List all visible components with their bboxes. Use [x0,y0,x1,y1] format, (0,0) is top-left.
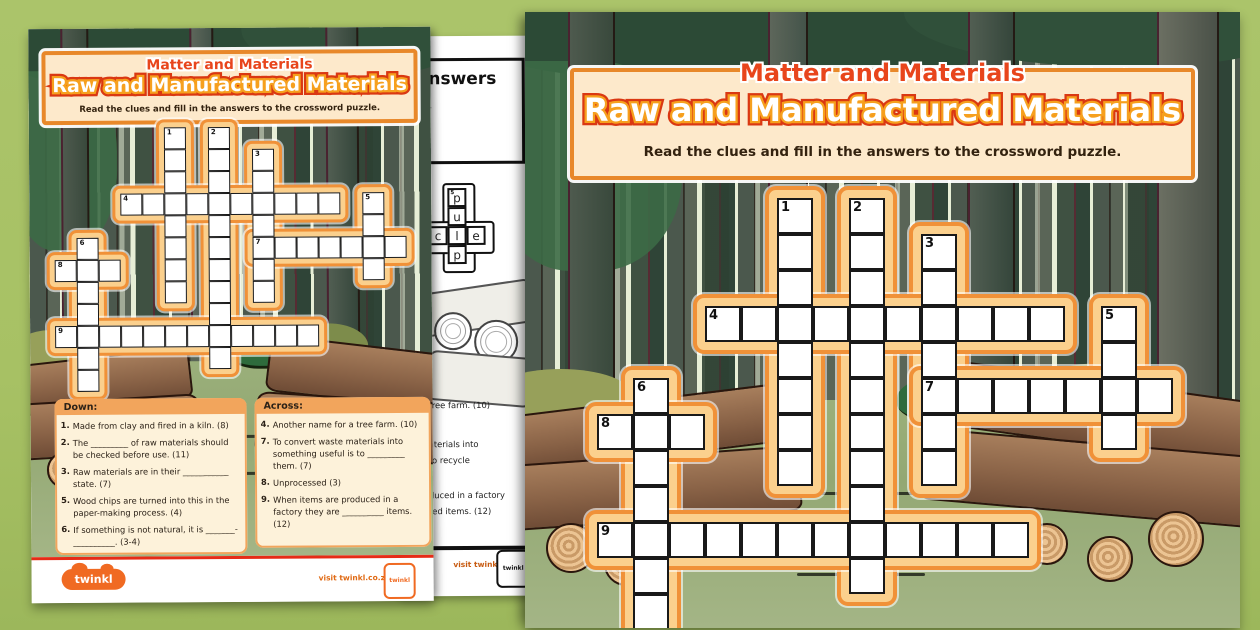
crossword-clue-number: 9 [58,328,63,335]
across-clues-title: Across: [255,397,431,414]
crossword-cell[interactable] [165,325,187,347]
answers-cell: p5 [447,188,466,207]
crossword-cell[interactable] [1101,342,1137,378]
crossword-cell[interactable] [1029,306,1065,342]
visit-twinkl-link[interactable]: visit twinkl.co.za [319,573,390,582]
crossword-clue-number: 6 [637,381,646,394]
clue-item: 9.When items are produced in a factory t… [261,493,424,530]
clue-text: The _________ of raw materials should be… [73,436,240,461]
crossword-cell[interactable] [813,522,849,558]
clue-text: Made from clay and fired in a kiln. (8) [73,419,240,432]
crossword-cell[interactable] [165,259,187,281]
crossword-cell[interactable] [921,450,957,486]
crossword-cell[interactable] [1029,378,1065,414]
clue-item: 1.Made from clay and fired in a kiln. (8… [61,419,240,432]
crossword-cell[interactable] [164,193,186,215]
crossword-cell[interactable] [142,193,164,215]
crossword-cell[interactable] [164,149,186,171]
answers-clue-fragment: tree farm. (10) [428,400,536,411]
crossword-cell[interactable] [143,325,165,347]
crossword-cell[interactable] [363,258,385,280]
crossword-clue-number: 1 [781,201,790,214]
crossword-clue-number: 7 [256,239,261,246]
crossword-cell[interactable] [669,414,705,450]
clue-number: 6. [61,524,73,548]
crossword-cell[interactable] [296,192,318,214]
answers-clue-fragment: duced in a factory [429,489,537,500]
clue-text: To convert waste materials into somethin… [273,435,424,472]
crossword-cell[interactable] [777,306,813,342]
crossword-clue-number: 3 [255,151,260,158]
answer-letter: u [449,209,464,224]
crossword-cell[interactable] [252,215,274,237]
crossword-cell[interactable] [921,414,957,450]
crossword-cell[interactable] [921,522,957,558]
clue-item: 3.Raw materials are in their ___________… [61,465,240,490]
crossword-cell[interactable] [319,236,341,258]
crossword-cell[interactable] [209,281,231,303]
crossword-cell[interactable] [99,260,121,282]
answers-clue-fragment: red items. (12) [429,505,537,516]
crossword-cell[interactable] [253,259,275,281]
crossword-cell[interactable] [253,281,275,303]
crossword-cell[interactable] [77,304,99,326]
crossword-cell[interactable] [209,259,231,281]
log-sketch-illustration [434,312,472,350]
crossword-cell[interactable] [297,324,319,346]
crossword-cell[interactable] [957,522,993,558]
clue-number: 2. [61,437,73,461]
crossword-cell[interactable]: 4 [120,194,142,216]
down-clues-box: Down: 1.Made from clay and fired in a ki… [55,398,248,555]
crossword-cell[interactable] [777,450,813,486]
crossword-cell[interactable]: 2 [208,127,230,149]
clue-item: 2.The _________ of raw materials should … [61,436,240,461]
crossword-cell[interactable]: 6 [633,378,669,414]
clue-item: 7.To convert waste materials into someth… [261,435,424,472]
crossword-cell[interactable] [208,149,230,171]
crossword-cell[interactable]: 7 [921,378,957,414]
clue-number: 5. [61,495,73,519]
crossword-cell[interactable] [921,270,957,306]
crossword-cell[interactable] [187,325,209,347]
crossword-cell[interactable] [921,342,957,378]
crossword-cell[interactable] [209,237,231,259]
crossword-cell[interactable]: 5 [362,192,384,214]
crossword-cell[interactable] [633,486,669,522]
clue-number: 1. [61,420,73,432]
crossword-cell[interactable]: 7 [253,237,275,259]
crossword-cell[interactable] [318,192,340,214]
crossword-clue-number: 3 [925,237,934,250]
resource-preview: Answers cle. p5ulpce tree farm. (10)ater… [0,0,1260,630]
crossword-clue-number: 5 [1105,309,1114,322]
preview-page: Matter and Materials Raw and Manufacture… [525,12,1240,628]
crossword-cell[interactable] [77,370,99,392]
answers-cell: e [467,226,486,245]
crossword-clue-number: 8 [58,262,63,269]
crossword-clue-number: 4 [709,309,718,322]
crossword-cell[interactable] [633,558,669,594]
page-footer: twinkl visit twinkl.co.za twinkl [31,555,433,603]
crossword-cell[interactable] [741,522,777,558]
down-clues-list: 1.Made from clay and fired in a kiln. (8… [55,414,248,555]
crossword-cell[interactable]: 1 [164,127,186,149]
clue-item: 6.If something is not natural, it is ___… [61,523,240,548]
crossword-clue-number: 5 [450,190,454,196]
clue-text: When items are produced in a factory the… [273,493,424,530]
crossword-cell[interactable] [209,325,231,347]
clue-item: 8.Unprocessed (3) [261,476,424,489]
answer-letter: p [450,247,465,262]
crossword-cell[interactable] [297,236,319,258]
crossword-grid: 123456789 [525,12,1240,628]
crossword-cell[interactable] [921,306,957,342]
crossword-clue-number: 2 [211,129,216,136]
crossword-cell[interactable] [849,522,885,558]
clue-number: 4. [261,419,273,431]
clue-item: 5.Wood chips are turned into this in the… [61,494,240,519]
crossword-cell[interactable] [777,378,813,414]
crossword-cell[interactable] [993,378,1029,414]
crossword-cell[interactable] [849,486,885,522]
crossword-cell[interactable] [993,306,1029,342]
crossword-cell[interactable] [362,214,384,236]
clue-number: 9. [261,494,273,530]
crossword-cell[interactable] [705,522,741,558]
crossword-clue-number: 5 [365,194,370,201]
crossword-clue-number: 6 [80,240,85,247]
crossword-clue-number: 8 [601,417,610,430]
crossword-cell[interactable] [777,234,813,270]
answers-cell: l [448,226,467,245]
crossword-cell[interactable] [164,215,186,237]
crossword-cell[interactable] [993,522,1029,558]
crossword-cell[interactable] [252,193,274,215]
crossword-cell[interactable] [777,342,813,378]
clue-number: 3. [61,466,73,490]
crossword-cell[interactable] [164,171,186,193]
twinkl-logo: twinkl [62,569,126,590]
crossword-cell[interactable]: 1 [777,198,813,234]
answers-subtitle-fragment: cle. [418,101,522,111]
clue-number: 7. [261,436,273,472]
crossword-cell[interactable] [957,378,993,414]
crossword-cell[interactable]: 9 [55,326,77,348]
crossword-cell[interactable]: 3 [252,149,274,171]
crossword-cell[interactable] [849,414,885,450]
crossword-cell[interactable] [849,234,885,270]
crossword-cell[interactable] [1065,378,1101,414]
crossword-cell[interactable] [777,522,813,558]
crossword-clue-number: 2 [853,201,862,214]
crossword-cell[interactable] [186,193,208,215]
crossword-cell[interactable] [77,282,99,304]
crossword-cell[interactable] [777,414,813,450]
worksheet-page: Matter and Materials Raw and Manufacture… [28,27,433,603]
answers-clue-fragments: tree farm. (10)aterials intoto recycledu… [428,400,537,517]
crossword-cell[interactable]: 3 [921,234,957,270]
across-clues-box: Across: 4.Another name for a tree farm. … [255,397,432,548]
crossword-cell[interactable] [885,306,921,342]
crossword-cell[interactable] [1101,378,1137,414]
crossword-cell[interactable] [849,558,885,594]
crossword-cell[interactable] [741,306,777,342]
clue-text: Raw materials are in their ___________ s… [73,465,240,490]
crossword-cell[interactable] [385,236,407,258]
crossword-cell[interactable] [813,306,849,342]
answer-letter: c [431,228,446,243]
crossword-cell[interactable] [274,193,296,215]
clue-text: Unprocessed (3) [273,476,424,489]
crossword-cell[interactable] [77,326,99,348]
answers-cell: u [447,207,466,226]
clue-text: Another name for a tree farm. (10) [273,418,424,431]
crossword-cell[interactable] [77,348,99,370]
crossword-cell[interactable] [231,325,253,347]
crossword-cell[interactable] [165,281,187,303]
answer-letter: l [450,228,465,243]
crossword-cell[interactable] [99,326,121,348]
crossword-cell[interactable] [252,171,274,193]
clue-item: 4.Another name for a tree farm. (10) [261,418,424,431]
crossword-cell[interactable] [253,325,275,347]
clue-text: Wood chips are turned into this in the p… [73,494,240,519]
crossword-cell[interactable] [121,326,143,348]
crossword-cell[interactable] [633,450,669,486]
crossword-cell[interactable] [208,193,230,215]
crossword-cell[interactable] [230,193,252,215]
crossword-cell[interactable] [1101,414,1137,450]
crossword-clue-number: 4 [123,196,128,203]
answers-clue-fragment: aterials into [429,439,537,450]
clue-number: 8. [261,477,273,489]
crossword-clue-number: 9 [601,525,610,538]
crossword-cell[interactable] [1137,378,1173,414]
crossword-cell[interactable]: 9 [597,522,633,558]
crossword-clue-number: 1 [167,129,172,136]
crossword-cell[interactable] [849,306,885,342]
answers-cell: p [448,245,467,264]
crossword-cell[interactable] [77,260,99,282]
crossword-cell[interactable] [633,414,669,450]
across-clues-list: 4.Another name for a tree farm. (10)7.To… [255,413,432,539]
clue-text: If something is not natural, it is _____… [73,523,240,548]
crossword-cell[interactable] [208,215,230,237]
crossword-cell[interactable] [363,236,385,258]
crossword-clue-number: 7 [925,381,934,394]
answers-clue-fragment: to recycle [429,454,537,465]
crossword-cell[interactable] [275,237,297,259]
crossword-cell[interactable] [849,342,885,378]
crossword-cell[interactable]: 8 [55,260,77,282]
crossword-cell[interactable] [849,450,885,486]
crossword-cell[interactable] [633,594,669,628]
crossword-cell[interactable] [209,347,231,369]
crossword-cell[interactable]: 8 [597,414,633,450]
crossword-cell[interactable] [209,303,231,325]
crossword-cell[interactable] [275,325,297,347]
crossword-cell[interactable] [849,378,885,414]
crossword-cell[interactable] [777,270,813,306]
crossword-cell[interactable]: 2 [849,198,885,234]
crossword-cell[interactable]: 5 [1101,306,1137,342]
crossword-cell[interactable] [208,171,230,193]
crossword-cell[interactable] [633,522,669,558]
crossword-cell[interactable] [885,522,921,558]
answer-letter: e [469,228,484,243]
crossword-cell[interactable] [849,270,885,306]
crossword-cell[interactable]: 6 [77,238,99,260]
crossword-cell[interactable] [341,236,363,258]
crossword-cell[interactable] [957,306,993,342]
down-clues-title: Down: [55,398,247,415]
crossword-cell[interactable] [165,237,187,259]
crossword-cell[interactable] [669,522,705,558]
twinkl-badge-icon: twinkl [384,563,416,599]
crossword-cell[interactable]: 4 [705,306,741,342]
